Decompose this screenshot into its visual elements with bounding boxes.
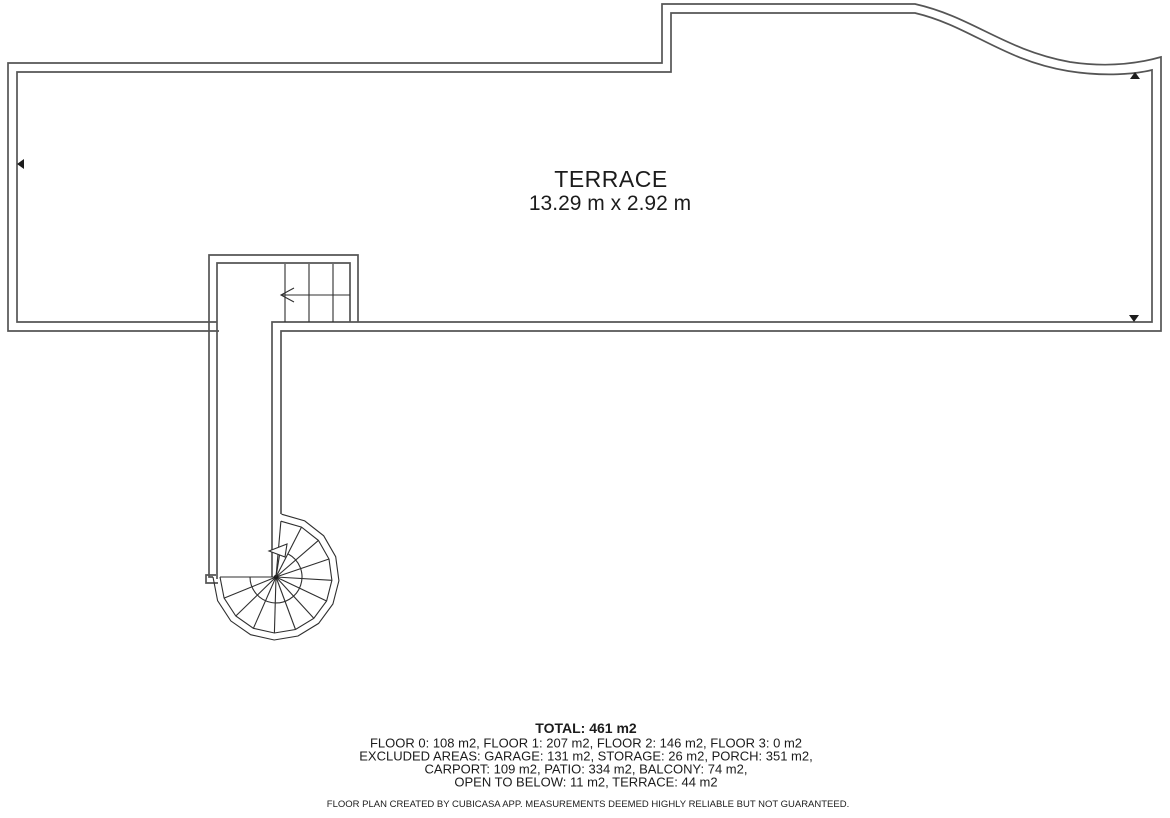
opening-arrow-left-icon [17,159,24,169]
terrace-outline [8,4,1161,577]
opening-arrow-down-icon [1129,315,1139,322]
stair-enclosure-inner [217,263,350,579]
summary-disclaimer: FLOOR PLAN CREATED BY CUBICASA APP. MEAS… [327,799,849,810]
room-label-group: TERRACE 13.29 m x 2.92 m [529,166,691,215]
room-dimensions: 13.29 m x 2.92 m [529,192,691,215]
terrace-outer-wall [8,4,1161,514]
spiral-tread-line [276,577,314,618]
spiral-tread-line [274,577,276,633]
spiral-tread-line [236,577,276,616]
floor-plan-canvas: TERRACE 13.29 m x 2.92 m TOTAL: 461 m2 F… [0,0,1170,818]
summary-excluded-3: OPEN TO BELOW: 11 m2, TERRACE: 44 m2 [454,775,717,790]
floor-plan-page: TERRACE 13.29 m x 2.92 m TOTAL: 461 m2 F… [0,0,1170,818]
stair-enclosure-outer [209,255,358,577]
spiral-staircase [213,514,339,640]
upper-stair-treads [282,264,350,322]
spiral-tread-line [276,577,332,580]
room-name: TERRACE [554,166,667,192]
terrace-inner-wall [17,13,1152,577]
staircase [206,255,358,640]
summary-total: TOTAL: 461 m2 [535,720,637,736]
area-summary: TOTAL: 461 m2 FLOOR 0: 108 m2, FLOOR 1: … [327,720,849,810]
